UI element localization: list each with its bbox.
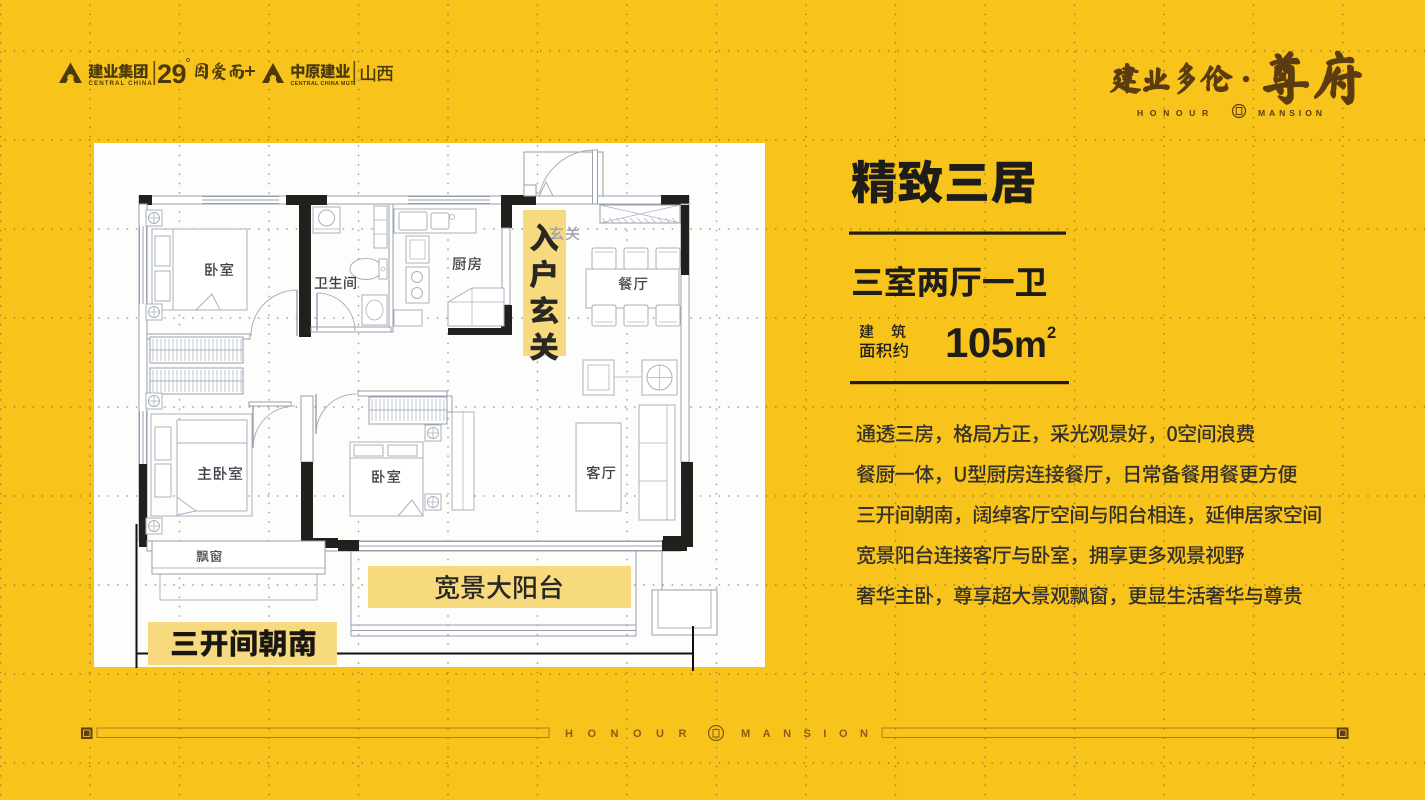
svg-text:29: 29 xyxy=(157,59,187,89)
svg-text:105: 105 xyxy=(945,319,1014,366)
svg-text:HONOUR: HONOUR xyxy=(565,728,701,740)
svg-text:MANSION: MANSION xyxy=(741,728,880,740)
svg-text:2: 2 xyxy=(1047,324,1056,342)
svg-text:HONOUR: HONOUR xyxy=(1137,108,1215,118)
svg-text:CENTRAL CHINA MGT: CENTRAL CHINA MGT xyxy=(291,81,355,87)
svg-text:MANSION: MANSION xyxy=(1258,108,1326,118)
svg-text:m: m xyxy=(1014,324,1047,365)
svg-text:CENTRAL CHINA: CENTRAL CHINA xyxy=(89,80,153,87)
